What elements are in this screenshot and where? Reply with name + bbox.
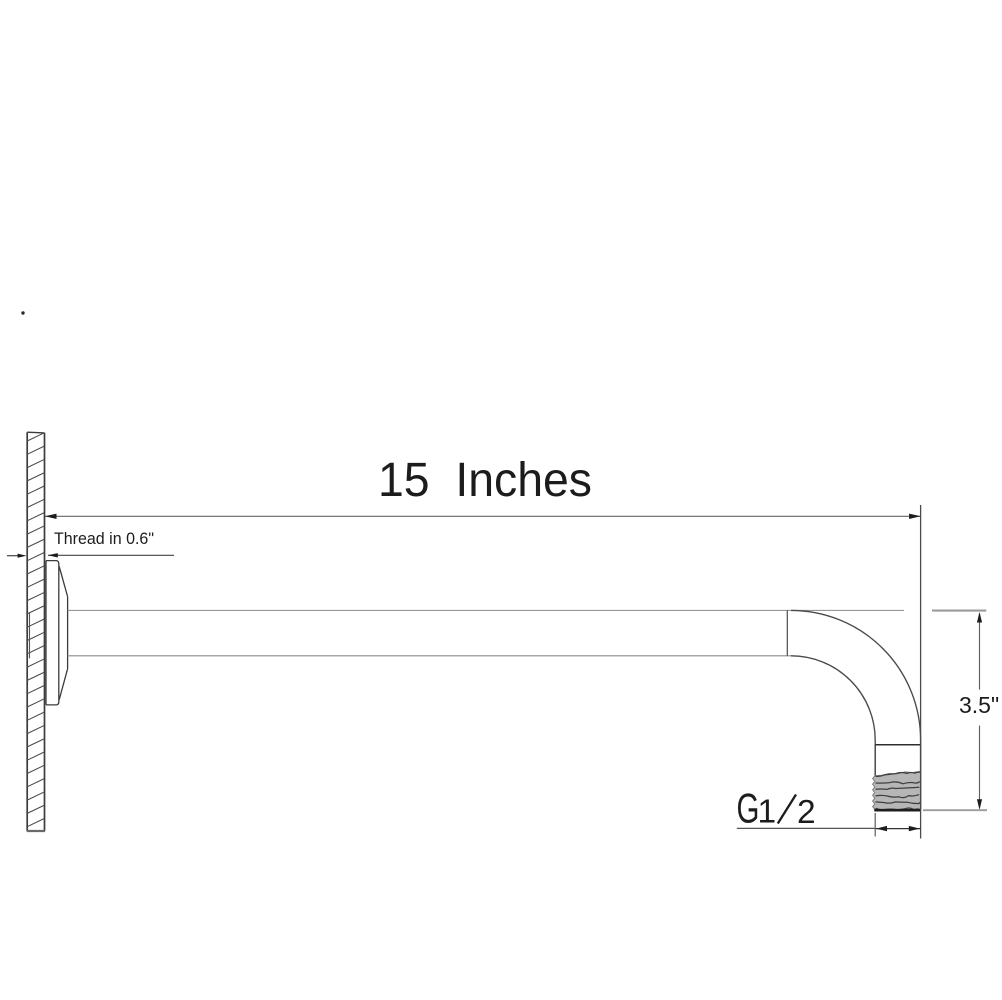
svg-text:15 Inches: 15 Inches xyxy=(378,454,592,507)
svg-text:G: G xyxy=(737,784,760,831)
svg-text:3.5": 3.5" xyxy=(959,692,999,718)
svg-text:2: 2 xyxy=(797,794,816,831)
svg-text:Thread in 0.6": Thread in 0.6" xyxy=(54,529,154,548)
svg-text:1: 1 xyxy=(758,794,777,831)
